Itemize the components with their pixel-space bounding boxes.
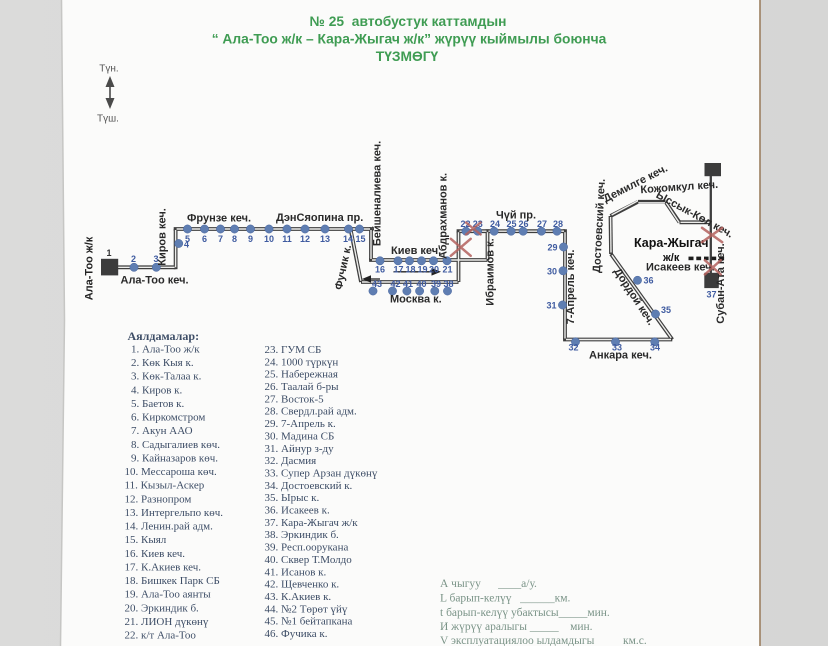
svg-text:28. Свердл.рай адм.: 28. Свердл.рай адм. [265, 406, 357, 418]
svg-text:Москва к.: Москва к. [390, 294, 442, 306]
svg-text:Аялдамалар:: Аялдамалар: [128, 329, 200, 343]
svg-text:43. К.Акиев к.: 43. К.Акиев к. [265, 591, 332, 603]
svg-text:29. 7-Апрель к.: 29. 7-Апрель к. [265, 418, 336, 430]
svg-text:35: 35 [661, 305, 671, 315]
svg-text:7: 7 [218, 234, 223, 244]
svg-text:19. Ала-Тоо аянты: 19. Ала-Тоо аянты [125, 589, 212, 601]
svg-text:26. Таалай б-ры: 26. Таалай б-ры [265, 381, 340, 393]
svg-text:29: 29 [547, 243, 557, 253]
svg-text:42. Щевченко к.: 42. Щевченко к. [265, 579, 340, 591]
svg-text:14: 14 [343, 234, 353, 244]
svg-text:42: 42 [390, 279, 400, 289]
svg-text:32: 32 [568, 343, 578, 353]
svg-text:37. Кара-Жыгач ж/к: 37. Кара-Жыгач ж/к [265, 517, 359, 529]
svg-text:1: 1 [106, 248, 111, 258]
svg-text:9. Кайназаров көч.: 9. Кайназаров көч. [131, 453, 218, 465]
svg-text:41. Исанов к.: 41. Исанов к. [265, 566, 327, 578]
svg-text:11: 11 [282, 234, 292, 244]
svg-text:“ Ала-Тоо ж/к – Кара-Жыгач ж/к: “ Ала-Тоо ж/к – Кара-Жыгач ж/к” жүрүү кы… [212, 32, 607, 47]
svg-text:Киев кеч.: Киев кеч. [391, 245, 441, 257]
svg-text:1. Ала-Тоо ж/к: 1. Ала-Тоо ж/к [131, 344, 200, 356]
svg-text:7-Апрель кеч.: 7-Апрель кеч. [565, 250, 577, 325]
svg-text:18: 18 [405, 265, 415, 275]
svg-text:Ибраимов к.: Ибраимов к. [485, 238, 497, 305]
svg-text:Кара-Жыгач: Кара-Жыгач [634, 236, 709, 250]
svg-text:10: 10 [264, 234, 274, 244]
svg-text:Ала-Тоо кеч.: Ала-Тоо кеч. [121, 275, 189, 287]
svg-text:30: 30 [547, 267, 557, 277]
svg-text:13: 13 [320, 234, 330, 244]
svg-text:Түш.: Түш. [97, 114, 119, 125]
svg-text:И жүрүү аралыгы _____ мин.: И жүрүү аралыгы _____ мин. [440, 621, 593, 633]
svg-text:L барып-келүү ______км.: L барып-келүү ______км. [440, 593, 571, 605]
svg-text:21. ЛИОН дүкөнү: 21. ЛИОН дүкөнү [125, 616, 209, 628]
svg-text:19: 19 [417, 265, 427, 275]
svg-text:Субан-Ата кеч.: Субан-Ата кеч. [715, 243, 727, 323]
svg-text:36. Исакеев к.: 36. Исакеев к. [265, 505, 330, 517]
svg-text:V эксплуатациялоо ылдамдыгы: V эксплуатациялоо ылдамдыгы км.с. [440, 635, 647, 646]
svg-text:22. к/т Ала-Тоо: 22. к/т Ала-Тоо [125, 630, 197, 642]
svg-text:32. Дасмия: 32. Дасмия [265, 455, 317, 467]
svg-text:9: 9 [248, 234, 253, 244]
svg-text:11. Кызыл-Аскер: 11. Кызыл-Аскер [125, 480, 205, 492]
svg-text:35. Ырыс к.: 35. Ырыс к. [265, 492, 320, 504]
svg-text:39: 39 [431, 279, 441, 289]
svg-text:Абдрахманов к.: Абдрахманов к. [438, 173, 450, 259]
svg-text:16: 16 [375, 265, 385, 275]
svg-text:15: 15 [355, 234, 365, 244]
svg-text:43: 43 [372, 279, 382, 289]
svg-text:8. Садыгалиев көч.: 8. Садыгалиев көч. [131, 439, 220, 451]
svg-text:31: 31 [546, 301, 556, 311]
svg-text:20: 20 [429, 265, 439, 275]
svg-text:Чүй пр.: Чүй пр. [496, 210, 536, 222]
svg-text:39. Респ.оорукана: 39. Респ.оорукана [265, 542, 349, 554]
svg-text:12: 12 [300, 234, 310, 244]
svg-text:31. Айнур з-ду: 31. Айнур з-ду [265, 443, 335, 455]
svg-text:20. Эркиндик б.: 20. Эркиндик б. [125, 602, 200, 614]
svg-text:3. Көк-Талаа к.: 3. Көк-Талаа к. [131, 371, 202, 383]
svg-text:6: 6 [202, 234, 207, 244]
svg-text:7. Акун ААО: 7. Акун ААО [131, 425, 193, 437]
svg-text:24. 1000 түркүн: 24. 1000 түркүн [265, 356, 339, 368]
svg-text:18. Бишкек Парк СБ: 18. Бишкек Парк СБ [125, 575, 220, 587]
svg-text:4. Киров к.: 4. Киров к. [131, 384, 183, 396]
svg-text:21: 21 [442, 265, 452, 275]
svg-text:8: 8 [232, 234, 237, 244]
svg-text:23. ГУМ СБ: 23. ГУМ СБ [265, 344, 322, 356]
svg-text:12. Разнопром: 12. Разнопром [125, 493, 192, 505]
svg-text:10. Мессароша көч.: 10. Мессароша көч. [125, 466, 218, 478]
svg-text:Анкара кеч.: Анкара кеч. [589, 350, 652, 362]
svg-text:Киров кеч.: Киров кеч. [157, 208, 169, 266]
svg-text:6. Киркомстром: 6. Киркомстром [131, 412, 205, 424]
svg-text:Ала-Тоо ж/к: Ала-Тоо ж/к [84, 236, 96, 300]
svg-text:17: 17 [393, 265, 403, 275]
svg-text:28: 28 [553, 219, 563, 229]
svg-text:16. Киев кеч.: 16. Киев кеч. [125, 548, 186, 560]
svg-text:ДэнСяопина пр.: ДэнСяопина пр. [276, 212, 363, 224]
svg-text:25. Набережная: 25. Набережная [265, 369, 338, 381]
svg-text:5. Баетов к.: 5. Баетов к. [131, 398, 185, 410]
svg-text:30. Мадина СБ: 30. Мадина СБ [265, 430, 335, 442]
svg-text:Бейшеналиева кеч.: Бейшеналиева кеч. [372, 141, 384, 246]
svg-text:40. Сквер Т.Молдо: 40. Сквер Т.Молдо [265, 554, 353, 566]
svg-text:27: 27 [537, 219, 547, 229]
svg-text:2. Көк Кыя к.: 2. Көк Кыя к. [131, 357, 194, 369]
svg-text:5: 5 [185, 234, 190, 244]
svg-text:34. Достоевский к.: 34. Достоевский к. [265, 480, 353, 492]
svg-text:27. Восток-5: 27. Восток-5 [265, 393, 325, 405]
svg-text:13. Интергельпо көч.: 13. Интергельпо көч. [125, 507, 224, 519]
svg-text:33. Супер Арзан дүкөнү: 33. Супер Арзан дүкөнү [265, 468, 378, 480]
svg-text:Түн.: Түн. [99, 64, 118, 75]
svg-text:41: 41 [403, 279, 413, 289]
svg-text:15. Кыял: 15. Кыял [125, 534, 167, 546]
svg-text:ТҮЗМӨГҮ: ТҮЗМӨГҮ [376, 49, 439, 64]
svg-text:17. К.Акиев кеч.: 17. К.Акиев кеч. [125, 561, 202, 573]
svg-text:45. №1 бейтапкана: 45. №1 бейтапкана [265, 616, 353, 628]
svg-text:14. Ленин.рай адм.: 14. Ленин.рай адм. [125, 521, 214, 533]
svg-text:t барып-келүү убактысы_____мин: t барып-келүү убактысы_____мин. [440, 607, 610, 619]
svg-text:44. №2 Төрөт үйү: 44. №2 Төрөт үйү [265, 603, 348, 615]
svg-text:38: 38 [443, 279, 453, 289]
svg-text:Исакеев кеч.: Исакеев кеч. [646, 262, 715, 274]
svg-text:36: 36 [643, 276, 653, 286]
svg-text:38. Эркиндик б.: 38. Эркиндик б. [265, 529, 340, 541]
svg-text:А чыгуу ____а/у.: А чыгуу ____а/у. [440, 578, 537, 590]
svg-text:№ 25 автобустук каттамдын: № 25 автобустук каттамдын [310, 14, 507, 29]
svg-text:Фрунзе кеч.: Фрунзе кеч. [187, 213, 251, 225]
svg-text:46. Фучика к.: 46. Фучика к. [265, 628, 328, 640]
svg-text:2: 2 [131, 254, 136, 264]
svg-text:40: 40 [416, 279, 426, 289]
